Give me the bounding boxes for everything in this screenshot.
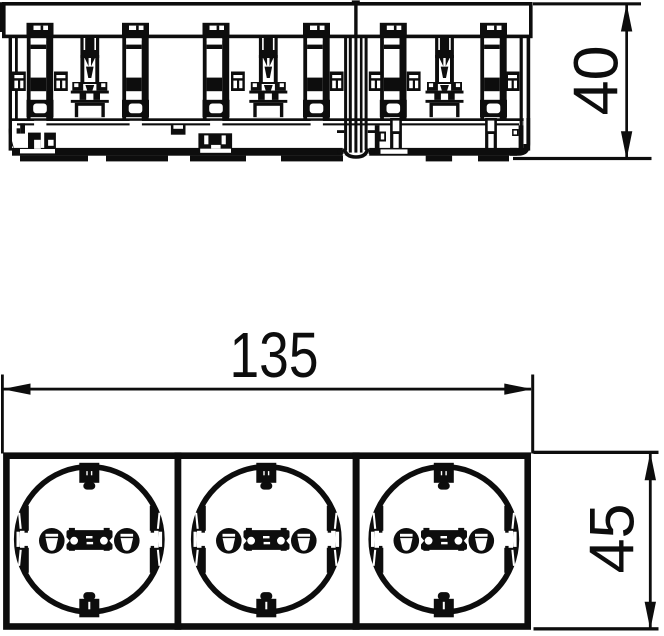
svg-text:45: 45 bbox=[578, 503, 648, 573]
svg-text:135: 135 bbox=[230, 319, 319, 391]
svg-text:40: 40 bbox=[562, 45, 632, 115]
